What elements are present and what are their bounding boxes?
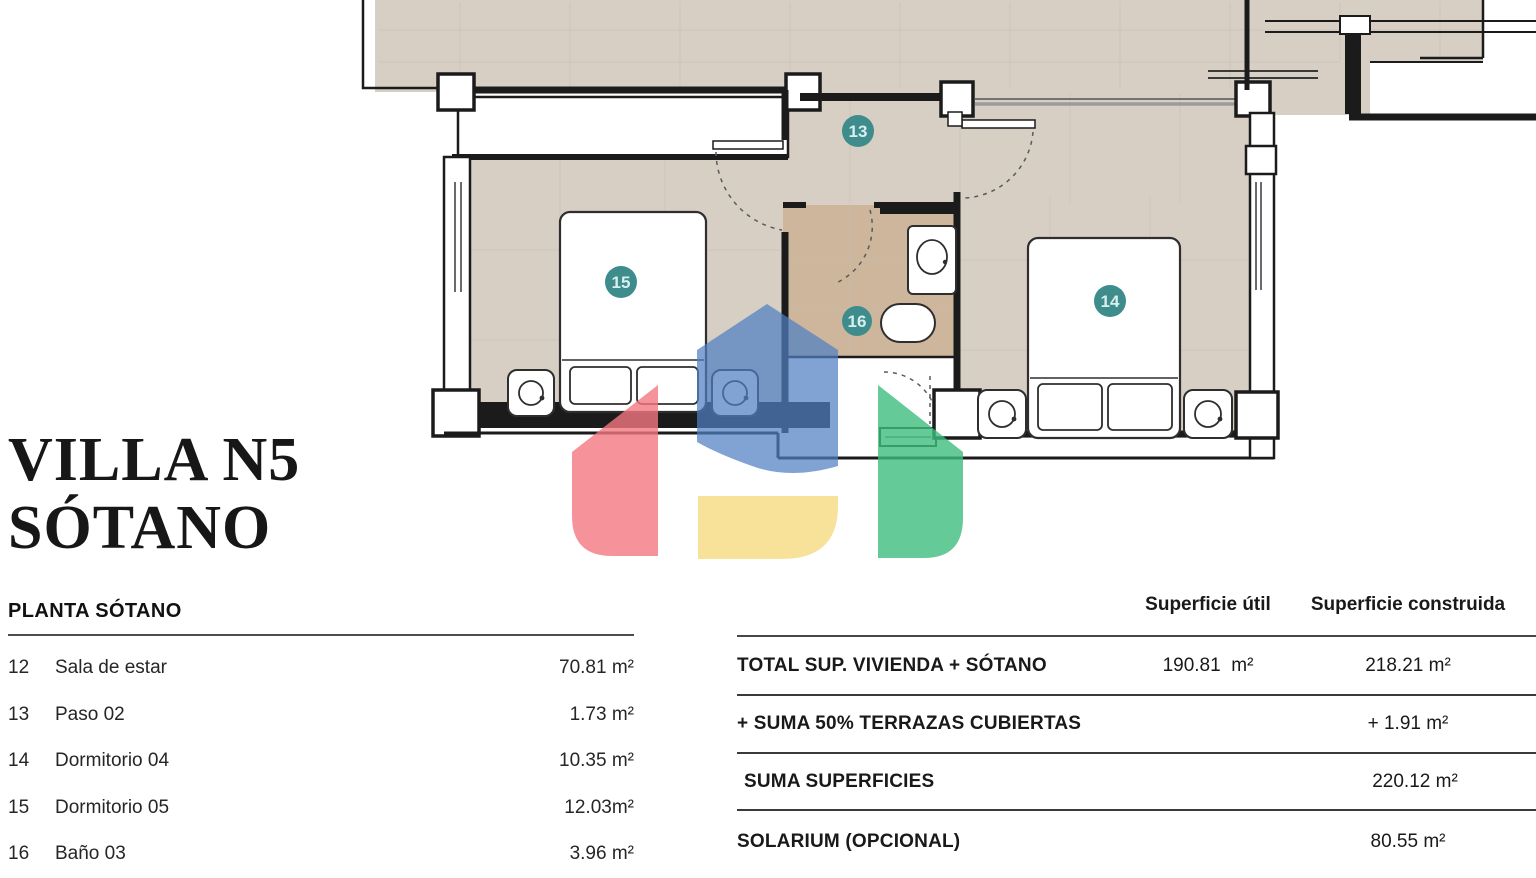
pillar: [1236, 82, 1270, 116]
page-title-line2: SÓTANO: [8, 494, 300, 562]
room-name: Sala de estar: [55, 657, 559, 679]
sink: [908, 226, 956, 294]
pillar: [438, 74, 474, 110]
room-area: 70.81 m²: [559, 657, 634, 679]
pillar: [1236, 392, 1278, 438]
room-number: 12: [8, 657, 55, 679]
summary-value-util: 190.81 m²: [1122, 655, 1294, 677]
table-row: 15 Dormitorio 05 12.03m²: [8, 785, 634, 832]
table-row: 12 Sala de estar 70.81 m²: [8, 645, 634, 692]
room-area: 3.96 m²: [570, 843, 634, 865]
room-badge-15: 15: [605, 266, 637, 298]
summary-header-row: Superficie útil Superficie construida: [737, 594, 1536, 637]
room-badge-14: 14: [1094, 285, 1126, 317]
svg-text:14: 14: [1101, 292, 1120, 311]
room-legend-table: PLANTA SÓTANO 12 Sala de estar 70.81 m² …: [8, 600, 634, 878]
pillar: [934, 390, 980, 438]
summary-value-construida: + 1.91 m²: [1294, 713, 1522, 735]
room-number: 16: [8, 843, 55, 865]
svg-text:16: 16: [848, 312, 867, 331]
room-table-header: PLANTA SÓTANO: [8, 600, 634, 636]
nightstand: [978, 390, 1026, 438]
svg-text:13: 13: [849, 122, 868, 141]
logo-yellow-shape: [698, 496, 838, 559]
pillar: [1246, 146, 1276, 174]
bed-15: [560, 212, 706, 412]
room-number: 13: [8, 704, 55, 726]
room-number: 14: [8, 750, 55, 772]
column-header-superficie-construida: Superficie construida: [1294, 594, 1522, 616]
room-name: Dormitorio 05: [55, 797, 564, 819]
toilet: [881, 304, 935, 342]
table-row: 16 Baño 03 3.96 m²: [8, 831, 634, 878]
summary-label: TOTAL SUP. VIVIENDA + SÓTANO: [737, 655, 1122, 677]
table-row: + SUMA 50% TERRAZAS CUBIERTAS + 1.91 m²: [737, 696, 1536, 754]
pillar: [786, 74, 820, 110]
page-title: VILLA N5 SÓTANO: [8, 426, 300, 562]
column-header-superficie-util: Superficie útil: [1122, 594, 1294, 616]
room-badge-13: 13: [842, 115, 874, 147]
room-name: Paso 02: [55, 704, 570, 726]
room-number: 15: [8, 797, 55, 819]
page-title-line1: VILLA N5: [8, 426, 300, 494]
room-badge-16: 16: [842, 306, 872, 336]
svg-text:15: 15: [612, 273, 631, 292]
pillar: [941, 82, 973, 116]
table-row: 13 Paso 02 1.73 m²: [8, 692, 634, 739]
summary-value-construida: 80.55 m²: [1294, 831, 1522, 853]
room-table-rows: 12 Sala de estar 70.81 m² 13 Paso 02 1.7…: [8, 645, 634, 878]
room-name: Dormitorio 04: [55, 750, 559, 772]
summary-value-construida: 220.12 m²: [1301, 771, 1529, 793]
summary-label: SUMA SUPERFICIES: [737, 771, 1129, 793]
table-row: SUMA SUPERFICIES 220.12 m²: [737, 754, 1536, 811]
nightstand: [508, 370, 554, 416]
nightstand: [1184, 390, 1232, 438]
surface-summary-table: Superficie útil Superficie construida TO…: [737, 594, 1536, 873]
pillar: [433, 390, 479, 436]
bed-14: [1028, 238, 1180, 438]
room-area: 1.73 m²: [570, 704, 634, 726]
summary-label: SOLARIUM (OPCIONAL): [737, 831, 1122, 853]
table-row: TOTAL SUP. VIVIENDA + SÓTANO 190.81 m² 2…: [737, 637, 1536, 696]
room-name: Baño 03: [55, 843, 570, 865]
table-row: 14 Dormitorio 04 10.35 m²: [8, 738, 634, 785]
room-area: 10.35 m²: [559, 750, 634, 772]
summary-value-construida: 218.21 m²: [1294, 655, 1522, 677]
room-area: 12.03m²: [564, 797, 634, 819]
summary-label: + SUMA 50% TERRAZAS CUBIERTAS: [737, 713, 1122, 735]
